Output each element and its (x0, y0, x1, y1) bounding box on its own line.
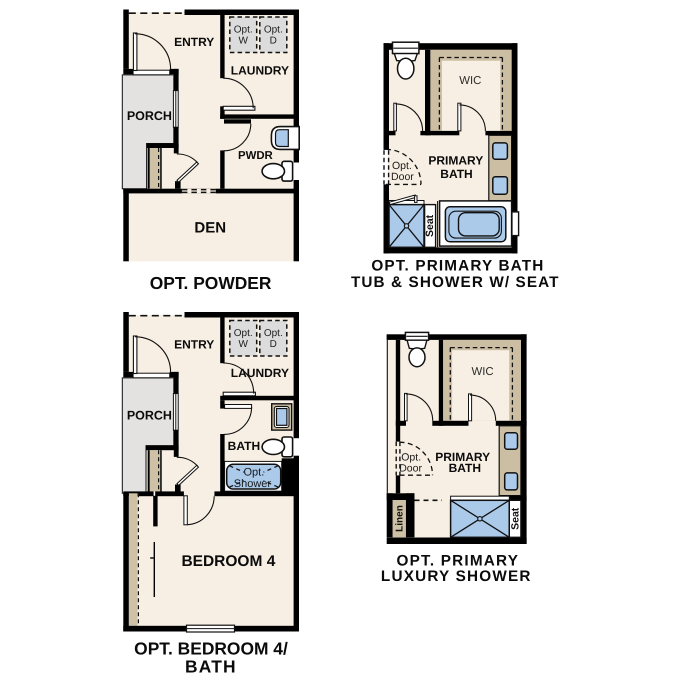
svg-text:PRIMARY: PRIMARY (428, 154, 483, 168)
svg-text:BATH: BATH (185, 656, 237, 676)
svg-text:PORCH: PORCH (127, 408, 172, 422)
svg-text:BEDROOM 4: BEDROOM 4 (181, 553, 275, 570)
svg-text:LAUNDRY: LAUNDRY (231, 64, 289, 78)
svg-text:Seat: Seat (424, 214, 436, 237)
svg-text:Opt.: Opt. (264, 328, 283, 339)
svg-text:Shower: Shower (234, 478, 272, 490)
svg-text:W: W (238, 339, 248, 350)
svg-text:LUXURY SHOWER: LUXURY SHOWER (381, 568, 532, 585)
svg-text:Opt.: Opt. (401, 451, 421, 463)
svg-text:Opt.: Opt. (392, 160, 412, 172)
svg-text:D: D (270, 35, 277, 46)
svg-text:ENTRY: ENTRY (174, 35, 214, 49)
svg-text:D: D (270, 339, 277, 350)
svg-text:Opt.: Opt. (244, 466, 265, 478)
svg-text:Opt.: Opt. (234, 328, 253, 339)
svg-text:Door: Door (391, 171, 414, 183)
svg-text:PWDR: PWDR (238, 150, 273, 162)
svg-text:BATH: BATH (449, 461, 481, 475)
svg-text:Seat: Seat (509, 507, 521, 530)
svg-text:Linen: Linen (395, 505, 406, 532)
svg-text:ENTRY: ENTRY (174, 338, 214, 352)
svg-text:TUB & SHOWER W/ SEAT: TUB & SHOWER W/ SEAT (351, 274, 560, 291)
svg-text:WIC: WIC (472, 366, 494, 378)
svg-text:LAUNDRY: LAUNDRY (231, 366, 289, 380)
svg-text:W: W (238, 35, 248, 46)
svg-text:OPT. PRIMARY BATH: OPT. PRIMARY BATH (371, 257, 544, 274)
svg-text:WIC: WIC (459, 75, 481, 87)
svg-text:Opt.: Opt. (234, 24, 253, 35)
svg-text:OPT. POWDER: OPT. POWDER (150, 273, 272, 293)
svg-text:DEN: DEN (194, 219, 226, 236)
svg-text:Opt.: Opt. (264, 24, 283, 35)
svg-text:BATH: BATH (440, 167, 472, 181)
svg-text:Door: Door (399, 463, 422, 475)
svg-text:BATH: BATH (228, 439, 260, 453)
svg-text:PORCH: PORCH (127, 109, 172, 123)
